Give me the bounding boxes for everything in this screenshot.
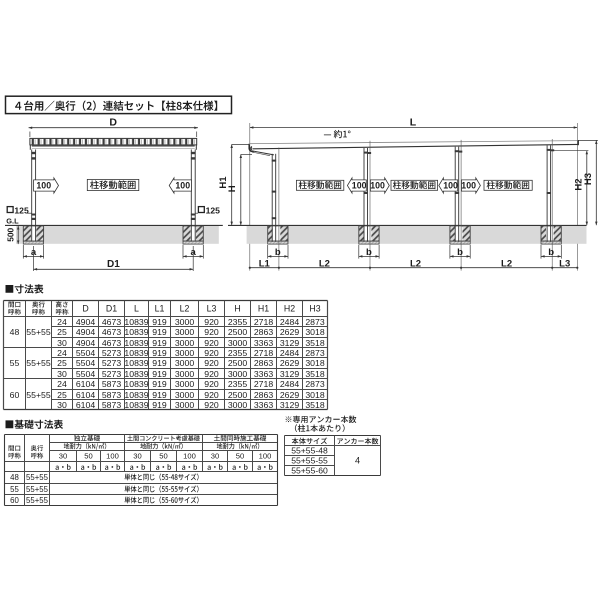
svg-text:55+55-55: 55+55-55 xyxy=(291,456,328,466)
svg-text:919: 919 xyxy=(152,338,167,348)
svg-text:3129: 3129 xyxy=(280,338,299,348)
svg-text:2718: 2718 xyxy=(254,379,273,389)
svg-text:3000: 3000 xyxy=(175,379,194,389)
svg-text:3518: 3518 xyxy=(305,338,324,348)
svg-text:3518: 3518 xyxy=(305,400,324,410)
svg-text:3000: 3000 xyxy=(175,317,194,327)
svg-text:L2: L2 xyxy=(501,259,512,270)
svg-text:55+55: 55+55 xyxy=(26,390,51,400)
svg-text:L2: L2 xyxy=(410,259,421,270)
svg-text:2484: 2484 xyxy=(280,379,299,389)
svg-text:2863: 2863 xyxy=(254,327,273,337)
svg-text:3363: 3363 xyxy=(254,338,273,348)
svg-text:3000: 3000 xyxy=(175,358,194,368)
svg-text:919: 919 xyxy=(152,390,167,400)
svg-text:2629: 2629 xyxy=(280,358,299,368)
svg-text:2355: 2355 xyxy=(228,348,247,358)
svg-text:4673: 4673 xyxy=(102,317,121,327)
svg-text:5504: 5504 xyxy=(76,369,95,379)
svg-text:3000: 3000 xyxy=(175,338,194,348)
svg-text:100: 100 xyxy=(461,181,476,191)
svg-text:10839: 10839 xyxy=(124,390,148,400)
svg-text:2500: 2500 xyxy=(228,390,247,400)
svg-text:10839: 10839 xyxy=(124,369,148,379)
svg-text:H: H xyxy=(227,185,238,192)
svg-text:10839: 10839 xyxy=(124,348,148,358)
svg-text:10839: 10839 xyxy=(124,400,148,410)
svg-text:2863: 2863 xyxy=(254,358,273,368)
svg-text:4904: 4904 xyxy=(76,338,95,348)
svg-text:2629: 2629 xyxy=(280,390,299,400)
svg-text:4: 4 xyxy=(355,456,360,466)
svg-text:2873: 2873 xyxy=(305,348,324,358)
svg-text:50: 50 xyxy=(159,452,167,461)
svg-text:100: 100 xyxy=(352,181,367,191)
svg-text:10839: 10839 xyxy=(124,317,148,327)
svg-text:H1: H1 xyxy=(258,303,269,313)
svg-text:2484: 2484 xyxy=(280,348,299,358)
svg-text:3000: 3000 xyxy=(175,327,194,337)
svg-text:3363: 3363 xyxy=(254,369,273,379)
svg-text:920: 920 xyxy=(204,400,219,410)
svg-text:25: 25 xyxy=(57,358,67,368)
svg-text:4904: 4904 xyxy=(76,317,95,327)
svg-text:5873: 5873 xyxy=(102,379,121,389)
svg-text:50: 50 xyxy=(236,452,244,461)
svg-text:3363: 3363 xyxy=(254,400,273,410)
svg-text:6104: 6104 xyxy=(76,390,95,400)
svg-text:60: 60 xyxy=(10,390,20,400)
svg-text:100: 100 xyxy=(36,181,51,191)
svg-text:4673: 4673 xyxy=(102,338,121,348)
svg-text:919: 919 xyxy=(152,317,167,327)
svg-text:L3: L3 xyxy=(559,259,570,270)
svg-text:2718: 2718 xyxy=(254,317,273,327)
svg-text:30: 30 xyxy=(57,338,67,348)
svg-text:125: 125 xyxy=(206,205,221,215)
svg-text:919: 919 xyxy=(152,358,167,368)
svg-text:L: L xyxy=(410,117,417,129)
svg-text:3018: 3018 xyxy=(305,327,324,337)
svg-text:919: 919 xyxy=(152,369,167,379)
svg-text:D: D xyxy=(109,117,117,129)
svg-text:2873: 2873 xyxy=(305,317,324,327)
svg-text:24: 24 xyxy=(57,317,67,327)
svg-text:920: 920 xyxy=(204,369,219,379)
svg-text:D: D xyxy=(82,303,88,313)
svg-text:919: 919 xyxy=(152,327,167,337)
svg-text:48: 48 xyxy=(10,473,19,482)
svg-text:H3: H3 xyxy=(309,303,320,313)
svg-text:920: 920 xyxy=(204,338,219,348)
svg-text:55+55: 55+55 xyxy=(26,496,49,505)
svg-text:D1: D1 xyxy=(106,303,117,313)
svg-text:H: H xyxy=(234,303,240,313)
svg-text:3000: 3000 xyxy=(228,338,247,348)
svg-text:3000: 3000 xyxy=(175,348,194,358)
svg-text:2500: 2500 xyxy=(228,327,247,337)
svg-text:3000: 3000 xyxy=(175,390,194,400)
svg-text:30: 30 xyxy=(57,369,67,379)
svg-text:3000: 3000 xyxy=(228,369,247,379)
svg-text:25: 25 xyxy=(57,390,67,400)
svg-text:4673: 4673 xyxy=(102,327,121,337)
svg-text:b: b xyxy=(548,247,554,258)
svg-text:5873: 5873 xyxy=(102,400,121,410)
svg-text:L3: L3 xyxy=(207,303,217,313)
svg-text:L2: L2 xyxy=(319,259,330,270)
svg-text:3000: 3000 xyxy=(228,400,247,410)
svg-text:3518: 3518 xyxy=(305,369,324,379)
svg-text:5273: 5273 xyxy=(102,369,121,379)
svg-text:H2: H2 xyxy=(284,303,295,313)
svg-text:10839: 10839 xyxy=(124,338,148,348)
svg-text:48: 48 xyxy=(10,327,20,337)
svg-text:5873: 5873 xyxy=(102,390,121,400)
svg-text:55+55: 55+55 xyxy=(26,358,51,368)
svg-text:920: 920 xyxy=(204,379,219,389)
svg-text:a: a xyxy=(191,247,197,258)
svg-text:30: 30 xyxy=(59,452,67,461)
svg-text:100: 100 xyxy=(259,452,272,461)
svg-text:100: 100 xyxy=(106,452,119,461)
svg-text:6104: 6104 xyxy=(76,400,95,410)
svg-text:30: 30 xyxy=(211,452,219,461)
svg-text:55+55: 55+55 xyxy=(26,473,49,482)
svg-text:500: 500 xyxy=(5,227,15,241)
svg-text:6104: 6104 xyxy=(76,379,95,389)
svg-text:920: 920 xyxy=(204,348,219,358)
svg-text:2863: 2863 xyxy=(254,390,273,400)
svg-text:919: 919 xyxy=(152,379,167,389)
svg-text:10839: 10839 xyxy=(124,327,148,337)
svg-text:3000: 3000 xyxy=(175,400,194,410)
svg-text:24: 24 xyxy=(57,348,67,358)
svg-text:24: 24 xyxy=(57,379,67,389)
svg-text:100: 100 xyxy=(370,181,385,191)
svg-text:920: 920 xyxy=(204,327,219,337)
svg-text:b: b xyxy=(275,247,281,258)
svg-text:60: 60 xyxy=(10,496,19,505)
svg-text:a: a xyxy=(31,247,37,258)
svg-text:125: 125 xyxy=(14,205,29,215)
svg-text:b: b xyxy=(366,247,372,258)
svg-text:920: 920 xyxy=(204,390,219,400)
svg-text:D1: D1 xyxy=(107,259,120,270)
svg-text:3018: 3018 xyxy=(305,390,324,400)
svg-text:55: 55 xyxy=(10,485,19,494)
svg-text:100: 100 xyxy=(175,181,190,191)
svg-text:10839: 10839 xyxy=(124,379,148,389)
svg-text:L1: L1 xyxy=(259,259,271,270)
svg-text:5504: 5504 xyxy=(76,348,95,358)
svg-text:3018: 3018 xyxy=(305,358,324,368)
svg-text:920: 920 xyxy=(204,317,219,327)
svg-text:55+55: 55+55 xyxy=(26,485,49,494)
svg-text:2718: 2718 xyxy=(254,348,273,358)
svg-text:55+55-60: 55+55-60 xyxy=(291,466,328,476)
svg-text:100: 100 xyxy=(443,181,458,191)
svg-text:4904: 4904 xyxy=(76,327,95,337)
svg-text:2355: 2355 xyxy=(228,379,247,389)
svg-text:2500: 2500 xyxy=(228,358,247,368)
svg-text:3000: 3000 xyxy=(175,369,194,379)
svg-text:55+55: 55+55 xyxy=(26,327,51,337)
svg-text:L1: L1 xyxy=(155,303,165,313)
svg-text:G.L: G.L xyxy=(6,216,19,225)
svg-text:2355: 2355 xyxy=(228,317,247,327)
svg-text:919: 919 xyxy=(152,400,167,410)
svg-text:2484: 2484 xyxy=(280,317,299,327)
svg-text:5273: 5273 xyxy=(102,348,121,358)
svg-text:5273: 5273 xyxy=(102,358,121,368)
svg-text:100: 100 xyxy=(183,452,196,461)
svg-text:55: 55 xyxy=(10,358,20,368)
svg-text:3129: 3129 xyxy=(280,400,299,410)
svg-text:30: 30 xyxy=(57,400,67,410)
svg-text:b: b xyxy=(457,247,463,258)
svg-text:3129: 3129 xyxy=(280,369,299,379)
svg-text:5504: 5504 xyxy=(76,358,95,368)
svg-text:2629: 2629 xyxy=(280,327,299,337)
svg-text:L: L xyxy=(134,303,139,313)
svg-text:919: 919 xyxy=(152,348,167,358)
svg-text:H3: H3 xyxy=(583,173,594,185)
svg-text:2873: 2873 xyxy=(305,379,324,389)
svg-text:30: 30 xyxy=(133,452,141,461)
svg-text:55+55-48: 55+55-48 xyxy=(291,446,328,456)
svg-text:10839: 10839 xyxy=(124,358,148,368)
svg-text:L2: L2 xyxy=(180,303,190,313)
svg-text:920: 920 xyxy=(204,358,219,368)
svg-text:50: 50 xyxy=(84,452,92,461)
svg-text:25: 25 xyxy=(57,327,67,337)
